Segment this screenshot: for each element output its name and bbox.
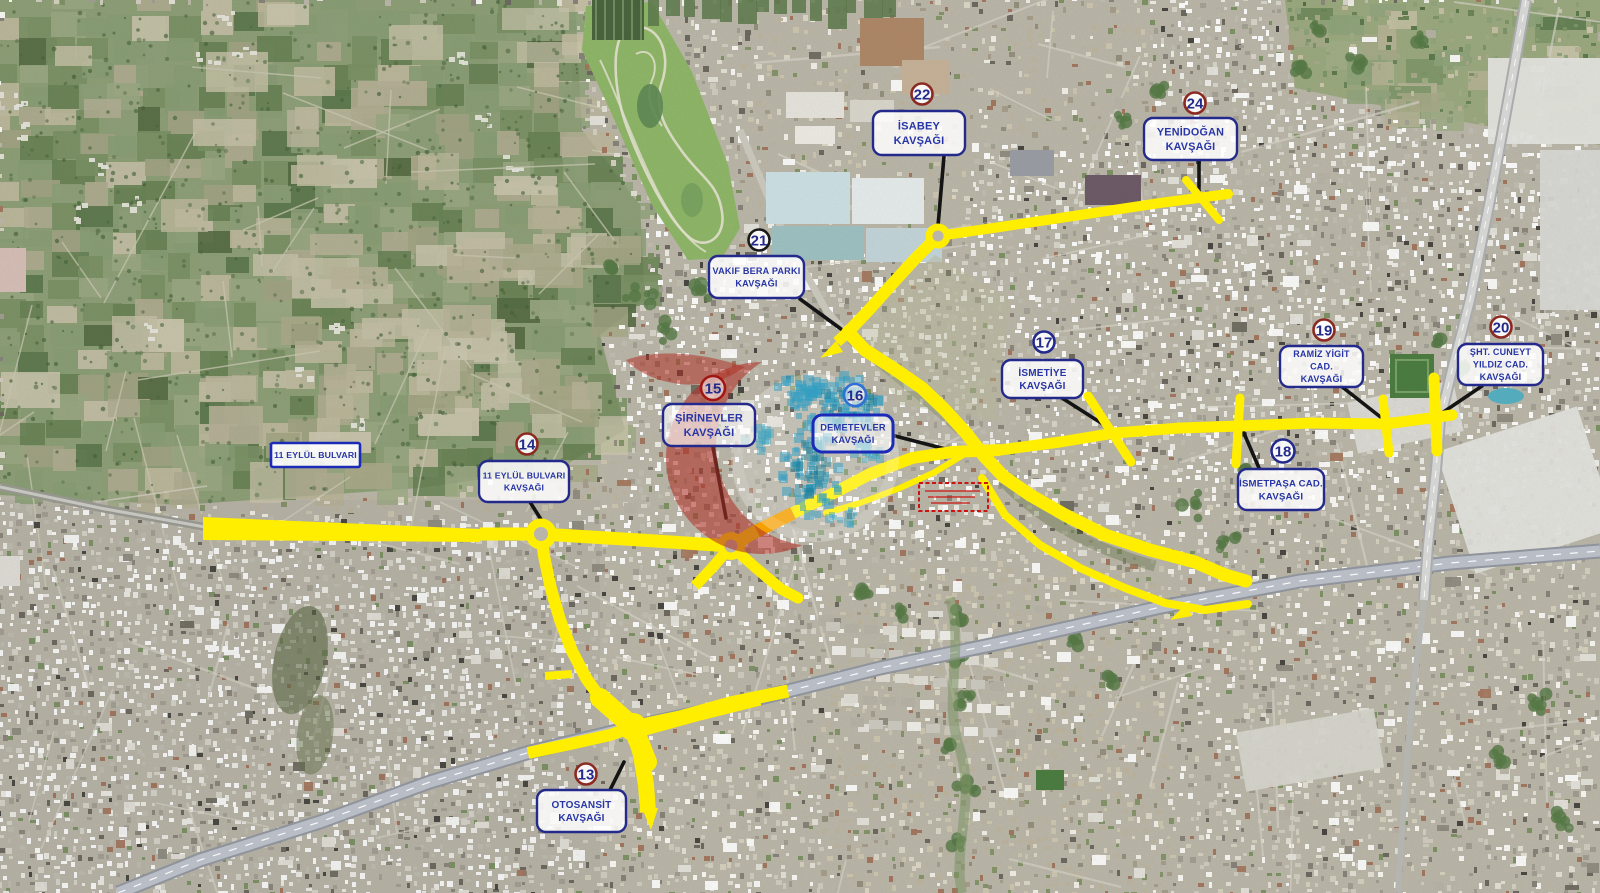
- svg-text:DEMETEVLER: DEMETEVLER: [820, 422, 886, 432]
- svg-text:21: 21: [751, 232, 768, 249]
- svg-text:24: 24: [1187, 95, 1204, 112]
- svg-text:RAMİZ YİGİT: RAMİZ YİGİT: [1293, 349, 1350, 359]
- svg-text:17: 17: [1036, 334, 1053, 351]
- svg-text:KAVŞAĞI: KAVŞAĞI: [1019, 379, 1065, 392]
- svg-text:KAVŞAĞI: KAVŞAĞI: [558, 811, 604, 824]
- svg-text:İSMETİYE: İSMETİYE: [1018, 366, 1066, 379]
- svg-text:KAVŞAĞI: KAVŞAĞI: [504, 482, 544, 493]
- svg-text:22: 22: [914, 86, 931, 103]
- svg-text:CAD.: CAD.: [1310, 362, 1333, 372]
- svg-text:OTOSANSİT: OTOSANSİT: [552, 798, 612, 811]
- svg-text:18: 18: [1275, 443, 1292, 460]
- svg-text:13: 13: [578, 766, 595, 783]
- svg-text:YENİDOĞAN: YENİDOĞAN: [1157, 126, 1224, 139]
- svg-text:KAVŞAĞI: KAVŞAĞI: [1480, 371, 1522, 382]
- svg-text:İSABEY: İSABEY: [898, 120, 941, 133]
- svg-text:KAVŞAĞI: KAVŞAĞI: [1301, 373, 1343, 384]
- svg-text:KAVŞAĞI: KAVŞAĞI: [831, 434, 874, 445]
- svg-text:14: 14: [519, 436, 536, 453]
- svg-text:19: 19: [1316, 322, 1333, 339]
- svg-text:YILDIZ CAD.: YILDIZ CAD.: [1473, 360, 1528, 370]
- svg-text:11 EYLÜL BULVARI: 11 EYLÜL BULVARI: [483, 470, 566, 480]
- svg-text:KAVŞAĞI: KAVŞAĞI: [894, 134, 945, 147]
- svg-text:KAVŞAĞI: KAVŞAĞI: [684, 426, 735, 439]
- svg-text:KAVŞAĞI: KAVŞAĞI: [1166, 140, 1216, 153]
- svg-text:KAVŞAĞI: KAVŞAĞI: [1259, 490, 1304, 502]
- svg-text:15: 15: [705, 380, 722, 397]
- svg-text:KAVŞAĞI: KAVŞAĞI: [735, 278, 777, 289]
- svg-text:11 EYLÜL BULVARI: 11 EYLÜL BULVARI: [274, 450, 357, 460]
- svg-text:ŞHT. CUNEYT: ŞHT. CUNEYT: [1470, 347, 1532, 357]
- svg-text:20: 20: [1493, 319, 1510, 336]
- svg-text:16: 16: [847, 387, 864, 404]
- svg-text:VAKIF BERA PARKI: VAKIF BERA PARKI: [713, 266, 801, 276]
- svg-text:İSMETPAŞA CAD.: İSMETPAŞA CAD.: [1239, 478, 1323, 489]
- svg-text:ŞİRİNEVLER: ŞİRİNEVLER: [675, 412, 743, 425]
